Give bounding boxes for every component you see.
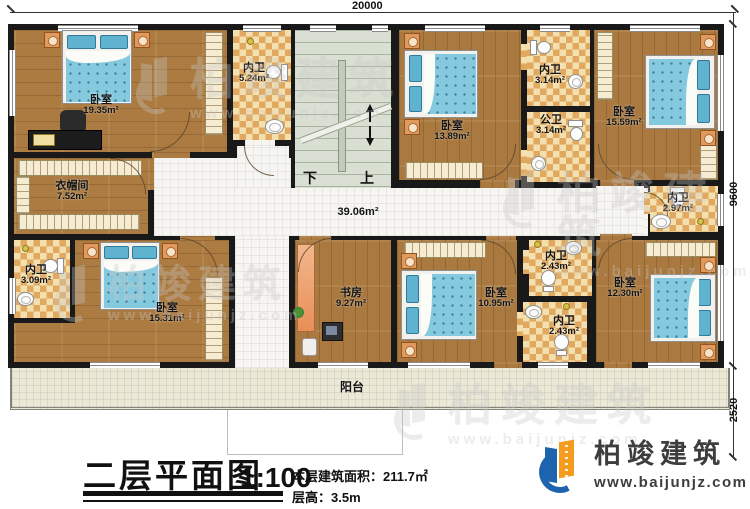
sink [525,305,542,319]
room-label-bedroom-6: 卧室 12.30m² [607,277,642,300]
door-opening [521,150,527,176]
floorplan-page: { "dims": {"top": "20000", "right_main":… [0,0,750,509]
bed [100,242,160,310]
sink [651,214,671,229]
pillow [67,35,96,49]
nightstand [700,130,716,146]
room-area: 15.31m² [149,314,184,325]
nightstand [44,32,60,48]
room-area: 2.43m² [541,262,571,273]
toilet-tank [57,258,64,274]
stair-arrow-down-icon [366,138,374,146]
room-label-bath-314: 内卫 3.14m² [535,64,565,87]
room-label-bedroom-3: 卧室 15.59m² [606,106,641,129]
room-label-study: 书房 9.27m² [336,287,366,310]
pillow [409,55,422,82]
door-opening [148,158,154,190]
wardrobe [645,242,716,257]
toilet-bowl [570,127,583,141]
faucet-dot [563,303,570,310]
bed [404,50,478,118]
room-area: 7.52m² [56,192,89,203]
sink [531,156,546,171]
bed [62,30,132,104]
toilet-tank [530,40,537,55]
room-label-bath-524: 内卫 5.24m² [239,62,269,85]
keyboard [302,338,317,356]
door-opening [523,250,529,274]
computer-monitor-screen [326,326,337,335]
room-area: 39.06m² [338,206,379,218]
room-label-bedroom-1: 卧室 19.35m² [83,94,118,117]
hall-floor [235,236,289,368]
nightstand [83,243,99,259]
room-area: 3.14m² [536,126,566,137]
dim-right-main-value: 9600 [728,182,740,206]
floor-height-row: 层高：3.5m [292,487,361,506]
bed [650,274,716,342]
bed [645,55,715,129]
room-area: 3.14m² [535,76,565,87]
nightstand [404,33,420,49]
pillow [406,307,419,334]
pillow [406,275,419,303]
window [425,25,485,32]
window [717,55,724,131]
stair-label-down: 下 [303,168,317,188]
floor-area-label: 本层建筑面积： [292,469,383,484]
faucet-dot [534,241,541,248]
window [540,25,570,32]
window [9,278,16,314]
window [243,25,281,32]
dim-right-balcony-value: 2520 [728,398,740,422]
toilet-bowl [537,41,551,54]
chair [60,110,86,130]
pillow [698,279,711,306]
nightstand [404,119,420,135]
window [372,25,388,32]
nightstand [700,344,716,360]
door-opening [521,44,527,70]
wardrobe [597,32,613,100]
hall-floor [596,186,644,234]
nightstand [162,243,178,259]
door-opening [480,180,515,188]
toilet-tank [281,64,288,81]
pillow [409,86,422,112]
room-area: 15.59m² [606,118,641,129]
nightstand [401,253,417,269]
title-underline [83,500,283,502]
page-title: 二层平面图 [83,449,263,497]
pillow [104,246,129,259]
door-opening [152,152,190,158]
room-name: 阳台 [340,380,364,394]
wardrobe [405,162,483,179]
window [717,194,724,226]
hall-area-label: 39.06m² [338,206,379,218]
sink [265,119,284,134]
room-label-bedroom-2: 卧室 13.89m² [434,120,469,143]
wardrobe [18,214,140,230]
faucet-dot [697,218,704,225]
room-label-balcony: 阳台 [340,381,364,394]
room-area: 10.95m² [478,299,513,310]
plant-icon [293,307,304,318]
wardrobe [16,176,30,214]
room-area: 2.43m² [549,327,579,338]
nightstand [700,257,716,273]
desk-lamp [33,134,55,146]
room-area: 9.27m² [336,299,366,310]
brand-building-icon [540,441,586,493]
wardrobe [205,277,223,361]
window [630,25,700,32]
room-area: 2.97m² [663,204,693,215]
floor-area-value: 211.7㎡ [383,469,428,484]
faucet-dot [22,245,29,252]
brand-url: www.baijunjz.com [594,475,747,490]
stair-arrow-shaft [369,110,371,122]
hall-floor [154,188,648,236]
room-label-cloakroom: 衣帽间 7.52m² [56,180,89,203]
pillow [698,310,711,336]
toilet-tank [543,286,554,292]
nightstand [700,34,716,50]
room-label-bedroom-5: 卧室 10.95m² [478,287,513,310]
dim-top-value: 20000 [352,0,383,12]
room-label-bath-297: 内卫 2.97m² [663,192,693,215]
room-label-bath-243-upper: 内卫 2.43m² [541,250,571,273]
room-label-bath-public: 公卫 3.14m² [536,114,566,137]
stair-rail [338,60,346,172]
faucet-dot [247,38,254,45]
pillow [697,60,710,90]
window [9,50,16,116]
balcony [10,368,730,410]
room-label-bath-243-lower: 内卫 2.43m² [549,315,579,338]
pillow [100,35,128,49]
stair-arrow-shaft [369,126,371,138]
window [717,265,724,341]
door-opening [600,180,634,186]
room-label-bath-309: 内卫 3.09m² [21,264,51,287]
toilet-tank [568,120,583,127]
wardrobe [700,142,717,180]
pillow [697,94,710,123]
dim-line-right [733,13,734,458]
bed [401,270,477,340]
room-area: 13.89m² [434,132,469,143]
sink [17,292,34,306]
room-area: 5.24m² [239,74,269,85]
room-area: 3.09m² [21,276,51,287]
window [310,25,336,32]
room-area: 12.30m² [607,289,642,300]
floor-height-value: 3.5m [331,490,361,505]
wardrobe [205,32,223,135]
nightstand [134,32,150,48]
room-label-bedroom-4: 卧室 15.31m² [149,302,184,325]
door-opening [486,236,516,240]
pillow [132,246,157,259]
floor-area-row: 本层建筑面积：211.7㎡ [292,466,428,485]
brand-logo: 柏竣建筑 www.baijunjz.com [540,441,747,493]
toilet-tank [556,350,567,356]
stair-label-up: 上 [360,168,374,188]
nightstand [401,342,417,358]
door-opening [517,312,523,336]
room-area: 19.35m² [83,106,118,117]
floor-height-label: 层高： [292,490,331,505]
brand-name: 柏竣建筑 [594,441,747,468]
sink [568,74,583,89]
dim-line-top [10,12,736,13]
